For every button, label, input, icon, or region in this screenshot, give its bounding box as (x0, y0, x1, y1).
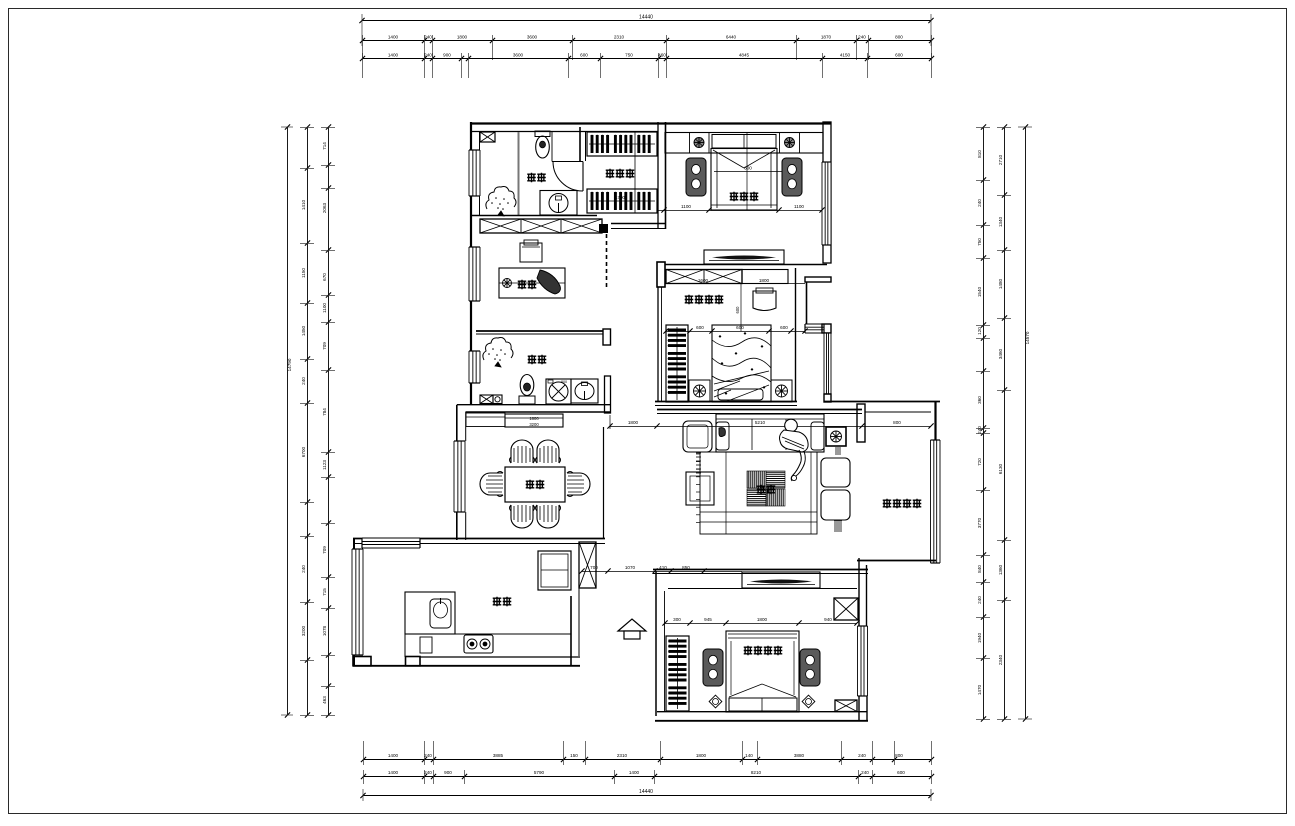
svg-text:1450: 1450 (301, 325, 306, 336)
svg-text:1070: 1070 (625, 565, 636, 570)
svg-text:8210: 8210 (751, 770, 762, 775)
svg-text:1100: 1100 (681, 204, 691, 209)
svg-text:4845: 4845 (739, 53, 750, 58)
svg-text:2063: 2063 (322, 202, 327, 213)
svg-text:2710: 2710 (998, 154, 1003, 165)
svg-text:1100: 1100 (322, 303, 327, 313)
svg-text:1800: 1800 (696, 753, 707, 758)
svg-text:940: 940 (824, 617, 832, 622)
svg-text:463: 463 (322, 696, 327, 704)
svg-text:6130: 6130 (998, 463, 1003, 474)
svg-text:240: 240 (424, 753, 432, 758)
svg-text:460: 460 (658, 53, 666, 58)
svg-text:3200: 3200 (529, 422, 539, 427)
svg-text:240: 240 (301, 377, 306, 385)
svg-text:240: 240 (977, 199, 982, 207)
svg-text:800: 800 (561, 380, 567, 384)
svg-text:840: 840 (977, 565, 982, 573)
svg-text:240: 240 (424, 770, 432, 775)
svg-text:1078: 1078 (322, 625, 327, 636)
svg-text:1123: 1123 (322, 460, 327, 470)
svg-text:5210: 5210 (755, 420, 766, 425)
svg-text:1400: 1400 (629, 770, 640, 775)
svg-text:800: 800 (893, 420, 901, 425)
svg-text:2340: 2340 (998, 654, 1003, 665)
svg-text:900: 900 (444, 770, 452, 775)
svg-text:240: 240 (977, 426, 982, 434)
svg-text:1470: 1470 (977, 684, 982, 695)
svg-text:2310: 2310 (614, 35, 625, 40)
svg-text:800: 800 (895, 35, 903, 40)
svg-text:150: 150 (570, 753, 578, 758)
svg-text:715: 715 (322, 588, 327, 596)
svg-text:5790: 5790 (534, 770, 545, 775)
svg-text:14440: 14440 (639, 789, 653, 795)
svg-text:720: 720 (977, 458, 982, 466)
svg-text:750: 750 (625, 53, 633, 58)
svg-text:700: 700 (590, 565, 598, 570)
svg-text:140: 140 (745, 753, 753, 758)
svg-text:1800: 1800 (628, 420, 639, 425)
svg-text:1540: 1540 (977, 286, 982, 297)
svg-text:6440: 6440 (726, 35, 737, 40)
svg-text:600: 600 (736, 325, 744, 330)
svg-text:240: 240 (977, 596, 982, 604)
svg-text:600: 600 (744, 166, 752, 171)
svg-text:2310: 2310 (617, 753, 628, 758)
svg-text:600: 600 (735, 306, 740, 314)
svg-text:1400: 1400 (388, 770, 399, 775)
svg-text:600: 600 (696, 325, 704, 330)
svg-text:600: 600 (780, 325, 788, 330)
svg-text:3600: 3600 (527, 35, 538, 40)
svg-text:1410: 1410 (301, 199, 306, 210)
svg-text:600: 600 (897, 770, 905, 775)
svg-text:1940: 1940 (977, 632, 982, 643)
svg-text:1800: 1800 (757, 617, 768, 622)
svg-text:1400: 1400 (388, 35, 399, 40)
svg-text:709: 709 (322, 342, 327, 350)
svg-text:1870: 1870 (821, 35, 832, 40)
svg-text:1800: 1800 (759, 278, 770, 283)
svg-text:600: 600 (580, 53, 588, 58)
svg-text:240: 240 (858, 35, 866, 40)
svg-text:900: 900 (443, 53, 451, 58)
svg-text:810: 810 (977, 150, 982, 158)
svg-text:945: 945 (704, 617, 712, 622)
svg-text:3880: 3880 (794, 753, 805, 758)
svg-text:1800: 1800 (457, 35, 468, 40)
svg-text:670: 670 (322, 273, 327, 281)
svg-text:14570: 14570 (1025, 331, 1030, 344)
svg-text:1100: 1100 (794, 204, 804, 209)
svg-text:14790: 14790 (287, 358, 292, 371)
svg-text:4150: 4150 (840, 53, 851, 58)
svg-text:3885: 3885 (493, 753, 504, 758)
svg-text:240: 240 (424, 53, 432, 58)
svg-text:1360: 1360 (998, 564, 1003, 575)
svg-text:3770: 3770 (977, 517, 982, 528)
svg-text:240: 240 (861, 770, 869, 775)
svg-text:1400: 1400 (388, 53, 399, 58)
svg-text:1340: 1340 (998, 216, 1003, 227)
svg-text:709: 709 (322, 546, 327, 554)
svg-text:1150: 1150 (301, 268, 306, 278)
svg-text:714: 714 (322, 142, 327, 150)
svg-text:600: 600 (895, 53, 903, 58)
svg-text:1700: 1700 (615, 195, 625, 200)
svg-text:750: 750 (977, 238, 982, 246)
svg-text:240: 240 (858, 753, 866, 758)
svg-text:3200: 3200 (301, 625, 306, 636)
svg-text:360: 360 (977, 396, 982, 404)
svg-text:1480: 1480 (998, 278, 1003, 289)
svg-text:6700: 6700 (301, 446, 306, 457)
svg-text:410: 410 (659, 565, 667, 570)
svg-text:300: 300 (673, 617, 681, 622)
svg-text:1600: 1600 (698, 278, 709, 283)
svg-text:1400: 1400 (388, 753, 399, 758)
svg-text:1800: 1800 (529, 416, 539, 421)
svg-text:850: 850 (682, 565, 690, 570)
svg-text:3460: 3460 (998, 348, 1003, 359)
svg-text:3600: 3600 (513, 53, 524, 58)
svg-text:14440: 14440 (639, 15, 653, 21)
svg-text:240: 240 (424, 35, 432, 40)
svg-text:240: 240 (301, 565, 306, 573)
svg-text:120: 120 (977, 327, 982, 335)
svg-text:784: 784 (322, 408, 327, 416)
svg-text:800: 800 (895, 753, 903, 758)
